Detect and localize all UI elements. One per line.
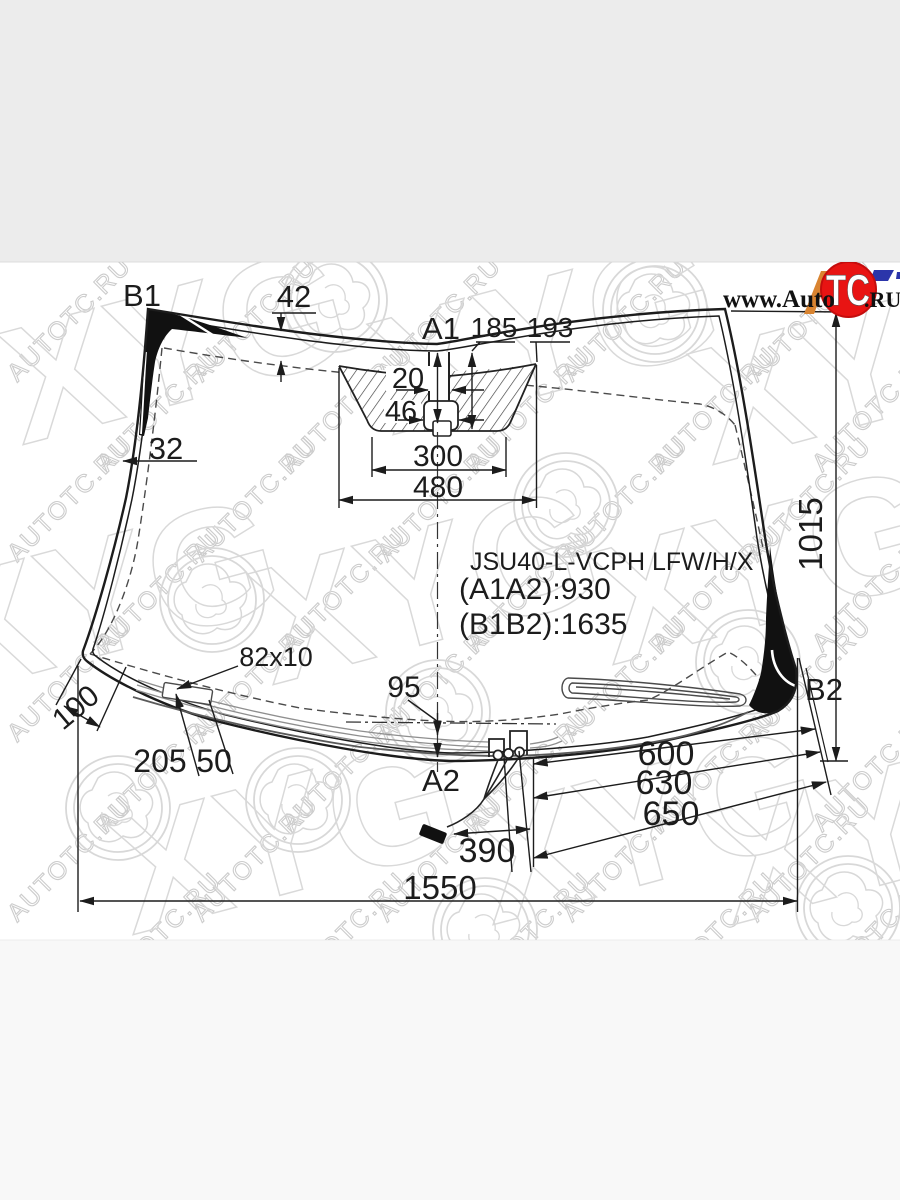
svg-text:300: 300 [413,440,463,473]
svg-text:193: 193 [527,312,574,343]
svg-text:650: 650 [643,795,700,833]
svg-text:.RU: .RU [864,287,900,312]
svg-text:205: 205 [133,743,186,779]
svg-text:A2: A2 [422,763,460,798]
svg-text:480: 480 [413,471,463,504]
svg-text:JSU40-L-VCPH LFW/H/X: JSU40-L-VCPH LFW/H/X [470,548,754,576]
svg-text:390: 390 [459,832,516,870]
svg-text:1015: 1015 [792,497,829,570]
svg-text:B1: B1 [123,278,161,313]
svg-text:42: 42 [277,279,311,314]
svg-text:20: 20 [392,363,424,395]
svg-text:50: 50 [196,743,232,779]
svg-text:32: 32 [149,431,183,466]
svg-text:B2: B2 [805,672,843,707]
svg-text:185: 185 [471,312,518,343]
svg-text:(A1A2):930: (A1A2):930 [459,573,611,606]
svg-text:82x10: 82x10 [239,642,313,672]
svg-text:www.Auto: www.Auto [723,286,835,313]
svg-text:1550: 1550 [403,869,476,906]
svg-text:46: 46 [385,396,417,428]
svg-text:A1: A1 [422,311,460,346]
svg-text:95: 95 [387,671,420,704]
svg-text:(B1B2):1635: (B1B2):1635 [459,608,627,641]
